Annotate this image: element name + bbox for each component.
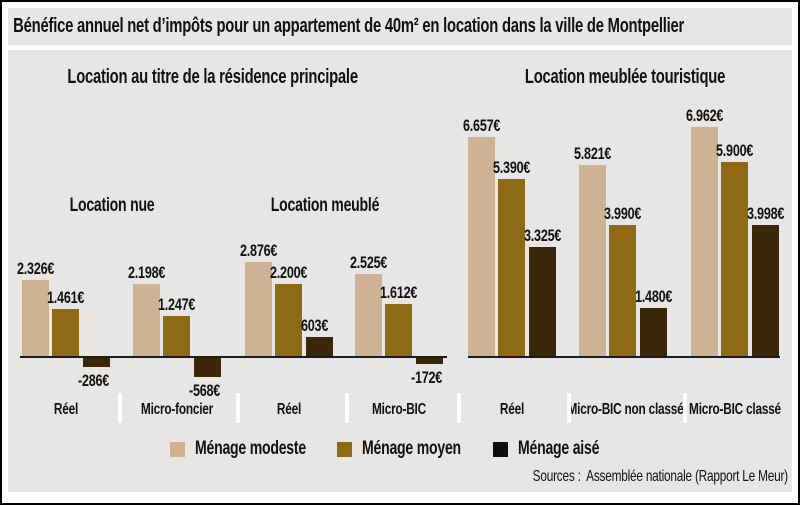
bar-menage-moyen — [163, 316, 190, 357]
chart-area: Location au titre de la résidence princi… — [8, 50, 792, 492]
value-label: 2.525€ — [350, 253, 387, 273]
bar-menage-aise — [306, 337, 333, 357]
value-label: 5.900€ — [716, 141, 753, 161]
category-separator — [457, 393, 461, 423]
value-label: 1.480€ — [635, 287, 672, 307]
bar-menage-aise — [194, 358, 221, 377]
legend-label-menage-moyen: Ménage moyen — [362, 438, 461, 460]
bar-menage-aise — [83, 358, 110, 367]
value-label: -568€ — [189, 381, 220, 401]
bar-menage-aise — [416, 358, 443, 364]
category-label: Réel — [234, 398, 345, 422]
category-label: Réel — [11, 398, 122, 422]
value-label: 2.876€ — [240, 241, 277, 261]
value-label: 1.612€ — [380, 283, 417, 303]
category-label: Micro-BIC non classé — [568, 398, 679, 422]
bar-menage-moyen — [609, 225, 636, 357]
value-label: 1.247€ — [158, 295, 195, 315]
subgroup-header-location-meuble: Location meublé — [266, 195, 384, 217]
category-separator — [683, 393, 687, 423]
category-label: Micro-BIC — [344, 398, 455, 422]
chart-title: Bénéfice annuel net d’impôts pour un app… — [8, 15, 684, 38]
baseline-axis-left — [20, 356, 447, 358]
value-label: 3.325€ — [524, 226, 561, 246]
value-label: 5.390€ — [493, 158, 530, 178]
bar-menage-aise — [752, 225, 779, 357]
bar-menage-moyen — [275, 284, 302, 357]
category-separator — [236, 393, 240, 423]
category-separator — [345, 393, 349, 423]
value-label: 5.821€ — [574, 144, 611, 164]
subgroup-header-location-nue: Location nue — [53, 195, 171, 217]
value-label: 6.962€ — [686, 106, 723, 126]
category-separator — [567, 393, 571, 423]
value-label: 6.657€ — [463, 116, 500, 136]
bar-menage-moyen — [385, 304, 412, 357]
legend-swatch-menage-aise — [493, 442, 508, 457]
legend-label-menage-modeste: Ménage modeste — [195, 438, 306, 460]
category-separator — [118, 393, 122, 423]
bar-menage-modeste — [691, 127, 718, 357]
section-header-residence-principale: Location au titre de la résidence princi… — [67, 66, 348, 89]
bar-menage-modeste — [355, 274, 382, 357]
value-label: 3.990€ — [604, 204, 641, 224]
bar-menage-modeste — [579, 165, 606, 357]
section-header-meublee-touristique: Location meublée touristique — [503, 66, 747, 89]
category-label: Micro-foncier — [122, 398, 233, 422]
value-label: -172€ — [411, 368, 442, 388]
bar-menage-moyen — [721, 162, 748, 357]
bar-menage-aise — [640, 308, 667, 357]
value-label: 3.998€ — [747, 204, 784, 224]
value-label: 1.461€ — [47, 288, 84, 308]
category-label: Réel — [457, 398, 568, 422]
value-label: 2.200€ — [270, 263, 307, 283]
source-credit: Sources : Assemblée nationale (Rapport L… — [533, 468, 788, 486]
legend-swatch-menage-modeste — [170, 442, 185, 457]
legend-swatch-menage-moyen — [337, 442, 352, 457]
chart-title-bar: Bénéfice annuel net d’impôts pour un app… — [8, 8, 792, 45]
bar-menage-modeste — [468, 137, 495, 357]
bar-menage-modeste — [245, 262, 272, 357]
value-label: -286€ — [78, 371, 109, 391]
baseline-axis-right — [468, 356, 780, 358]
value-label: 2.198€ — [128, 263, 165, 283]
bar-menage-modeste — [133, 284, 160, 357]
bar-menage-modeste — [22, 280, 49, 357]
bar-menage-aise — [529, 247, 556, 357]
bar-menage-moyen — [52, 309, 79, 357]
legend-label-menage-aise: Ménage aisé — [518, 438, 599, 460]
value-label: 2.326€ — [17, 259, 54, 279]
infographic-root: { "frame": { "title": "Bénéfice annuel n… — [0, 0, 800, 505]
category-label: Micro-BIC classé — [680, 398, 791, 422]
value-label: 603€ — [301, 316, 328, 336]
bar-menage-moyen — [498, 179, 525, 357]
